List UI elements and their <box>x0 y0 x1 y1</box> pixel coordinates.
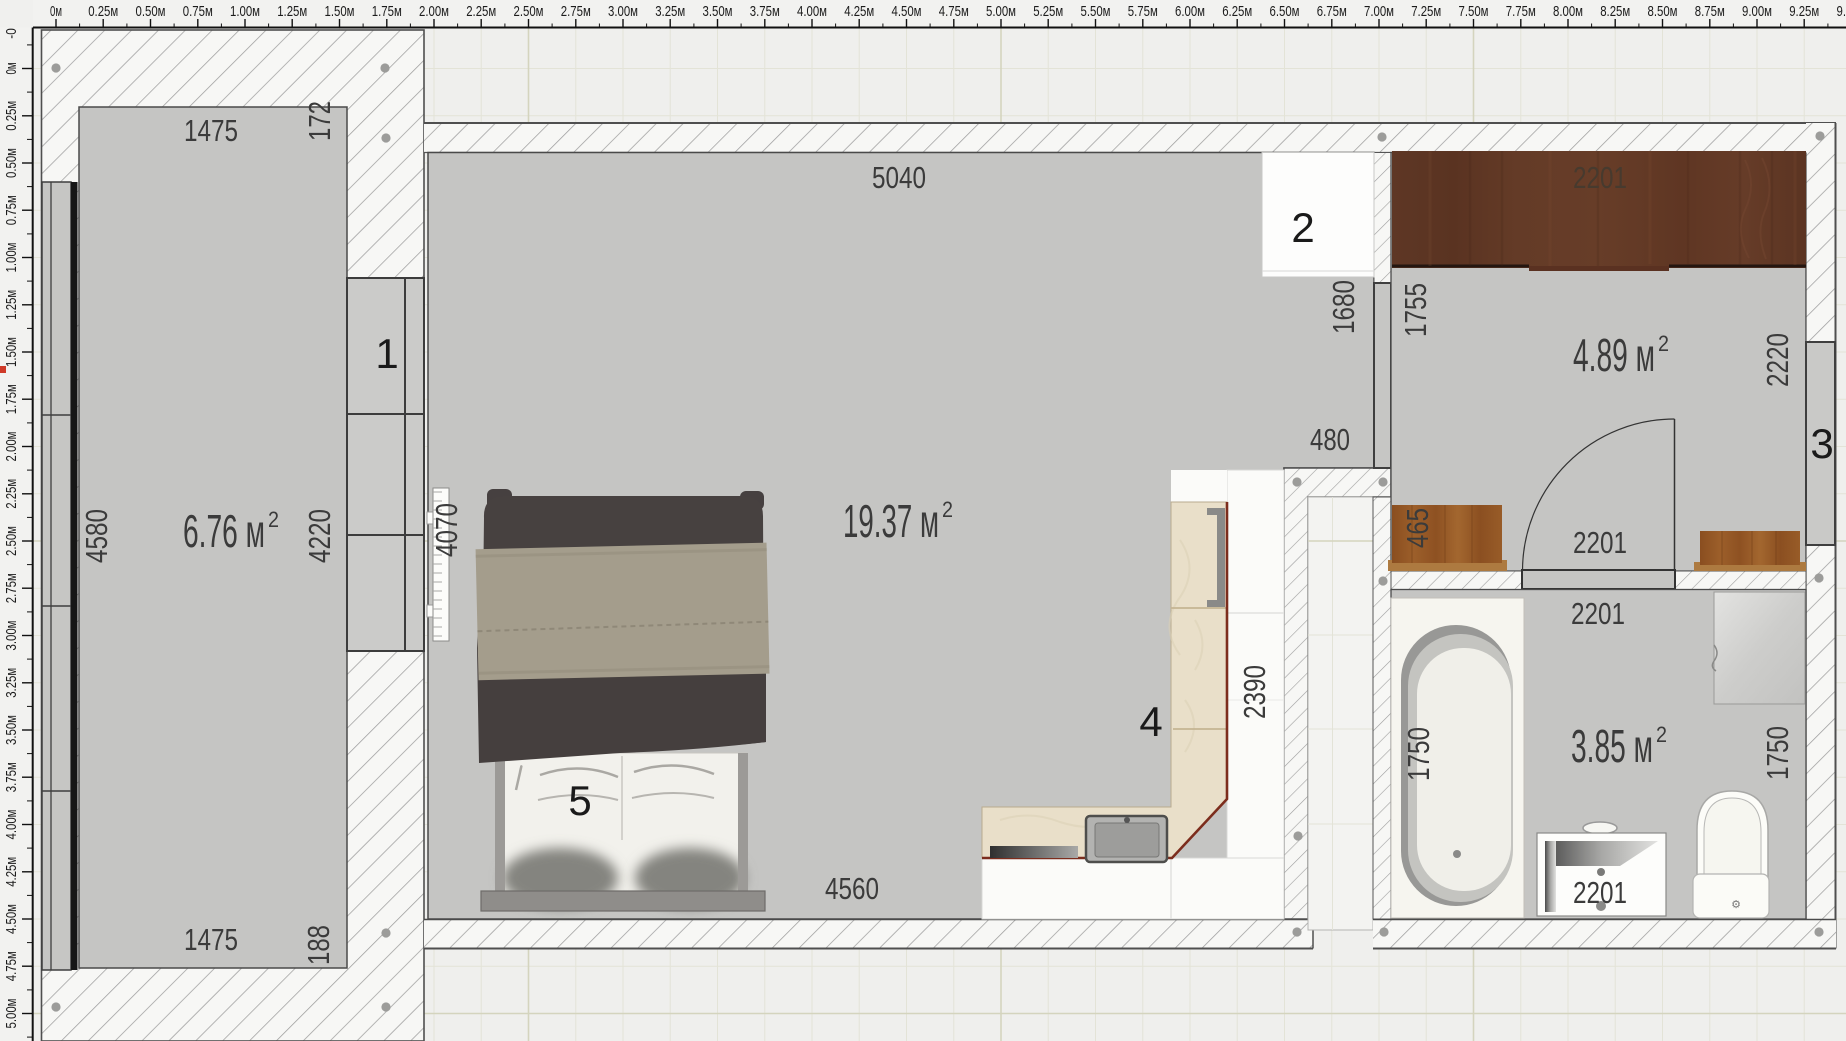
svg-text:3.50м: 3.50м <box>703 3 733 20</box>
svg-text:5.25м: 5.25м <box>1033 3 1063 20</box>
svg-text:6.50м: 6.50м <box>1270 3 1300 20</box>
svg-text:4.89 м: 4.89 м <box>1573 329 1655 381</box>
svg-text:6.75м: 6.75м <box>1317 3 1347 20</box>
svg-text:188: 188 <box>301 925 336 965</box>
svg-text:0.75м: 0.75м <box>183 3 213 20</box>
svg-text:2201: 2201 <box>1573 875 1627 910</box>
svg-text:7.25м: 7.25м <box>1411 3 1441 20</box>
svg-text:4560: 4560 <box>825 871 879 906</box>
svg-text:4.50м: 4.50м <box>892 3 922 20</box>
svg-text:2.50м: 2.50м <box>3 526 20 556</box>
svg-text:1755: 1755 <box>1398 283 1433 337</box>
svg-text:0м: 0м <box>3 63 20 75</box>
svg-text:3.75м: 3.75м <box>3 762 20 792</box>
svg-text:2.25м: 2.25м <box>3 479 20 509</box>
svg-text:1.50м: 1.50м <box>3 337 20 367</box>
svg-text:2201: 2201 <box>1573 160 1627 195</box>
svg-text:2.50м: 2.50м <box>514 3 544 20</box>
svg-text:1680: 1680 <box>1326 280 1361 334</box>
svg-text:5.00м: 5.00м <box>986 3 1016 20</box>
svg-text:7.75м: 7.75м <box>1506 3 1536 20</box>
svg-text:9.00м: 9.00м <box>1742 3 1772 20</box>
svg-text:1.50м: 1.50м <box>325 3 355 20</box>
svg-text:4.50м: 4.50м <box>3 904 20 934</box>
svg-text:0.25м: 0.25м <box>88 3 118 20</box>
svg-text:0м: 0м <box>50 3 62 20</box>
svg-text:4220: 4220 <box>302 509 337 563</box>
svg-text:9.25м: 9.25м <box>1789 3 1819 20</box>
svg-text:4.00м: 4.00м <box>797 3 827 20</box>
svg-text:19.37 м: 19.37 м <box>843 495 939 547</box>
svg-text:1.25м: 1.25м <box>277 3 307 20</box>
svg-text:4.25м: 4.25м <box>844 3 874 20</box>
svg-text:2: 2 <box>1656 722 1667 747</box>
svg-text:172: 172 <box>302 101 337 141</box>
svg-text:3.00м: 3.00м <box>608 3 638 20</box>
svg-text:8.00м: 8.00м <box>1553 3 1583 20</box>
svg-text:0.50м: 0.50м <box>3 148 20 178</box>
svg-text:1750: 1750 <box>1401 727 1436 781</box>
svg-text:4070: 4070 <box>429 503 464 557</box>
svg-text:5.50м: 5.50м <box>1081 3 1111 20</box>
svg-text:2201: 2201 <box>1573 525 1627 560</box>
svg-text:5.75м: 5.75м <box>1128 3 1158 20</box>
svg-text:4.75м: 4.75м <box>3 951 20 981</box>
svg-text:1.75м: 1.75м <box>372 3 402 20</box>
svg-text:2: 2 <box>1291 204 1314 251</box>
svg-text:2.00м: 2.00м <box>419 3 449 20</box>
svg-text:1.00м: 1.00м <box>3 243 20 273</box>
svg-text:4.25м: 4.25м <box>3 857 20 887</box>
svg-text:3.85 м: 3.85 м <box>1571 720 1653 772</box>
svg-text:9.50м: 9.50м <box>1837 3 1846 20</box>
svg-text:0.50м: 0.50м <box>136 3 166 20</box>
svg-text:3.75м: 3.75м <box>750 3 780 20</box>
svg-text:3.50м: 3.50м <box>3 715 20 745</box>
svg-text:2201: 2201 <box>1571 596 1625 631</box>
svg-text:7.00м: 7.00м <box>1364 3 1394 20</box>
svg-text:1.25м: 1.25м <box>3 290 20 320</box>
svg-text:2.75м: 2.75м <box>561 3 591 20</box>
svg-text:2.25м: 2.25м <box>466 3 496 20</box>
svg-text:4580: 4580 <box>79 509 114 563</box>
svg-text:5: 5 <box>568 777 591 824</box>
svg-text:6.25м: 6.25м <box>1222 3 1252 20</box>
svg-text:0.25м: 0.25м <box>3 101 20 131</box>
svg-text:1.00м: 1.00м <box>230 3 260 20</box>
svg-text:2: 2 <box>942 497 953 522</box>
svg-text:2: 2 <box>268 507 279 532</box>
svg-text:1475: 1475 <box>184 113 238 148</box>
svg-text:3.25м: 3.25м <box>655 3 685 20</box>
svg-text:4.00м: 4.00м <box>3 810 20 840</box>
svg-text:3.00м: 3.00м <box>3 621 20 651</box>
svg-text:0.75м: 0.75м <box>3 195 20 225</box>
svg-text:⚙: ⚙ <box>1731 899 1741 911</box>
svg-text:2390: 2390 <box>1237 665 1272 719</box>
svg-text:4: 4 <box>1139 698 1162 745</box>
svg-text:8.75м: 8.75м <box>1695 3 1725 20</box>
svg-text:2.00м: 2.00м <box>3 432 20 462</box>
svg-text:5.00м: 5.00м <box>3 999 20 1029</box>
svg-text:4.75м: 4.75м <box>939 3 969 20</box>
svg-text:1: 1 <box>375 330 398 377</box>
svg-text:465: 465 <box>1400 508 1435 548</box>
svg-text:6.76 м: 6.76 м <box>183 505 265 557</box>
svg-text:3.25м: 3.25м <box>3 668 20 698</box>
svg-text:1750: 1750 <box>1760 726 1795 780</box>
svg-text:2220: 2220 <box>1760 333 1795 387</box>
svg-text:3: 3 <box>1810 420 1833 467</box>
svg-text:1.75м: 1.75м <box>3 384 20 414</box>
svg-text:5040: 5040 <box>872 160 926 195</box>
svg-text:6.00м: 6.00м <box>1175 3 1205 20</box>
svg-text:8.50м: 8.50м <box>1648 3 1678 20</box>
svg-text:480: 480 <box>1310 422 1350 457</box>
svg-text:2: 2 <box>1658 331 1669 356</box>
svg-text:7.50м: 7.50м <box>1459 3 1489 20</box>
svg-text:2.75м: 2.75м <box>3 573 20 603</box>
svg-text:8.25м: 8.25м <box>1600 3 1630 20</box>
svg-text:1475: 1475 <box>184 922 238 957</box>
